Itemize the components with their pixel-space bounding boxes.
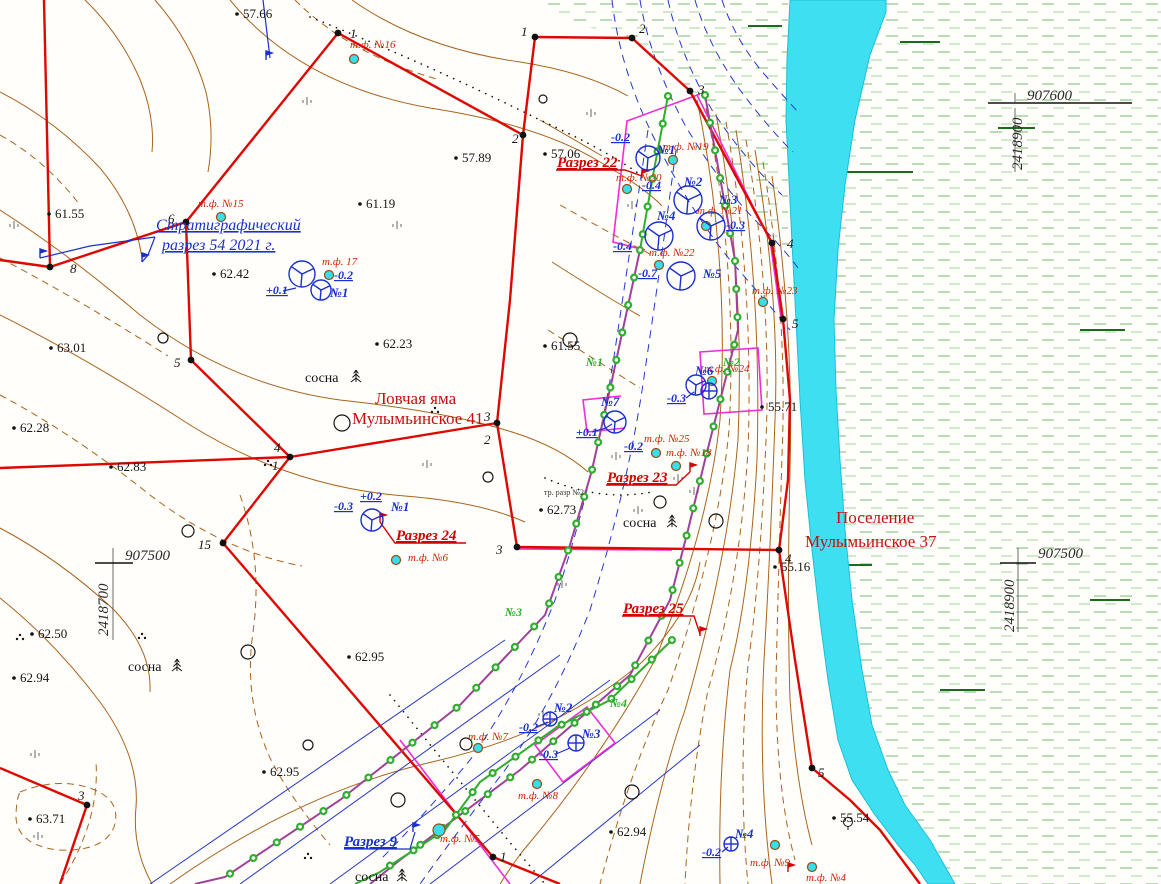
depth-offset-label: -0.2: [611, 130, 630, 144]
boundary-vertex-label: 1: [350, 26, 357, 41]
pit-number-label: №2: [683, 174, 703, 189]
survey-photo-point-dot: [652, 449, 661, 458]
photo-point-label: т.ф. 17: [322, 256, 358, 268]
pine-tree-icon: [172, 659, 182, 671]
site-name-label: Мулымьинское 41: [352, 409, 484, 428]
boundary-vertex-dot: [687, 88, 694, 95]
elevation-label: 55.54: [840, 810, 870, 825]
survey-photo-point-dot: [325, 271, 334, 280]
elevation-point-dot: [262, 770, 266, 774]
flag-icon: [266, 51, 272, 60]
elevation-point-dot: [454, 156, 458, 160]
depth-offset-label: +0.1: [576, 425, 598, 439]
pine-tree-icon: [397, 869, 407, 881]
grid-coordinate-label: 2418900: [1002, 579, 1018, 632]
pine-tree-icon: [667, 515, 677, 527]
boundary-vertex-label: 3: [77, 788, 85, 803]
depth-offset-label: -0.3: [334, 499, 353, 513]
trench-number-label: №1: [585, 355, 603, 369]
photo-point-label: т.ф. №18: [666, 447, 712, 459]
excavation-pit-icon: [701, 383, 717, 399]
elevation-point-dot: [12, 426, 16, 430]
boundary-vertex-dot: [809, 765, 816, 772]
survey-photo-point-dot: [672, 462, 681, 471]
pit-number-label: №1: [656, 142, 675, 157]
boundary-vertex-dot: [220, 540, 227, 547]
elevation-label: 57.66: [243, 6, 273, 21]
boundary-vertex-label: 1: [272, 458, 279, 473]
excavation-pit-icon: [645, 222, 673, 250]
boundary-vertex-dot: [629, 35, 636, 42]
boundary-vertex-dot: [514, 544, 521, 551]
boundary-vertex-label: 2: [484, 432, 491, 447]
pine-tree-icon: [351, 370, 361, 382]
elevation-label: 63.71: [36, 811, 65, 826]
elevation-label: 62.94: [617, 824, 647, 839]
photo-point-label: т.ф. №23: [752, 285, 798, 297]
elevation-label: 62.95: [270, 764, 299, 779]
elevation-point-dot: [543, 344, 547, 348]
trench-number-label: №2: [722, 355, 740, 369]
boundary-vertex-label: 2: [512, 131, 519, 146]
elevation-point-dot: [543, 152, 547, 156]
boundary-vertex-label: 5: [792, 316, 799, 331]
boundary-vertex-dot: [780, 316, 787, 323]
flag-icon: [413, 823, 419, 832]
elevation-label: 62.83: [117, 459, 146, 474]
elevation-point-dot: [30, 632, 34, 636]
boundary-vertex-dot: [494, 420, 501, 427]
elevation-point-dot: [12, 676, 16, 680]
vegetation-label: сосна: [355, 870, 389, 884]
grid-coordinate-label: 2418700: [96, 583, 112, 636]
point-symbol-circle: [303, 740, 313, 750]
elevation-point-dot: [760, 405, 764, 409]
boundary-vertex-dot: [769, 240, 776, 247]
depth-offset-label: -0.2: [702, 845, 721, 859]
photo-point-label: т.ф. №5: [440, 833, 481, 845]
depth-offset-label: -0.4: [642, 178, 661, 192]
elevation-label: 62.95: [355, 649, 384, 664]
trench-number-label: №3: [504, 605, 522, 619]
elevation-label: 57.89: [462, 150, 491, 165]
survey-photo-point-dot: [533, 780, 542, 789]
strat-section-label: Стратиграфический: [156, 217, 301, 234]
depth-offset-label: -0.7: [638, 266, 658, 280]
boundary-vertex-label: 2: [639, 21, 646, 36]
elevation-point-dot: [212, 272, 216, 276]
map-canvas[interactable]: 57.6657.8957.0661.5561.1962.4262.2361.55…: [0, 0, 1161, 884]
elevation-label: 62.42: [220, 266, 249, 281]
depth-offset-label: -0.4: [613, 239, 632, 253]
pit-number-label: №2: [553, 700, 573, 715]
excavation-section-label: Разрез 22: [557, 155, 618, 171]
pit-number-label: №7: [600, 394, 620, 409]
boundary-vertex-label: 3: [495, 542, 503, 557]
boundary-vertex-dot: [532, 34, 539, 41]
depth-offset-label: -0.2: [519, 720, 538, 734]
elevation-point-dot: [773, 565, 777, 569]
grid-coordinate-label: 907500: [125, 548, 171, 564]
elevation-point-dot: [347, 655, 351, 659]
excavation-section-label: Разрез 23: [607, 470, 668, 486]
swamp-symbols: [10, 97, 698, 859]
elevation-point-dot: [609, 830, 613, 834]
boundary-vertex-dot: [84, 802, 91, 809]
photo-point-label: т.ф. №9: [750, 857, 791, 869]
survey-photo-point-dot: [759, 298, 768, 307]
elevation-label: 62.28: [20, 420, 49, 435]
contour-lines: [0, 0, 812, 884]
flag-icon: [690, 463, 696, 472]
point-symbol-circle: [654, 496, 666, 508]
elevation-point-dot: [235, 12, 239, 16]
boundary-vertex-label: 8: [70, 261, 77, 276]
elevation-point-dot: [539, 508, 543, 512]
depth-offset-label: -0.2: [624, 439, 643, 453]
note-label: тр. разр №2: [544, 488, 584, 497]
excavation-pit-icon: [604, 411, 626, 433]
elevation-label: 62.50: [38, 626, 67, 641]
boundary-vertex-dot: [47, 264, 54, 271]
elevation-label: 62.23: [383, 336, 412, 351]
boundary-vertex-label: 1: [500, 849, 507, 864]
pit-number-label: №4: [734, 826, 754, 841]
boundary-vertex-dot: [335, 30, 342, 37]
depth-offset-label: -0.2: [334, 268, 353, 282]
elevation-point-dot: [375, 342, 379, 346]
depth-offset-label: -0.3: [726, 218, 745, 232]
point-symbol-circle: [334, 415, 350, 431]
elevation-point-dot: [28, 817, 32, 821]
photo-point-label: т.ф. №15: [198, 198, 244, 210]
survey-photo-point-dot: [392, 556, 401, 565]
grid-coordinate-label: 907600: [1027, 88, 1073, 104]
boundary-vertex-label: 15: [198, 537, 212, 552]
survey-photo-point-dot: [808, 863, 817, 872]
boundary-vertex-label: 3: [483, 409, 491, 424]
boundary-vertex-dot: [490, 854, 497, 861]
grid-coordinate-label: 907500: [1038, 546, 1084, 562]
survey-photo-point-dot: [771, 841, 780, 850]
pit-number-label: №1: [390, 499, 409, 514]
elevation-point-dot: [358, 202, 362, 206]
point-symbol-circle: [483, 472, 493, 482]
elevation-label: 62.73: [547, 502, 576, 517]
excavation-pit-icon: [289, 261, 315, 287]
topographic-map[interactable]: 57.6657.8957.0661.5561.1962.4262.2361.55…: [0, 0, 1161, 884]
point-symbol-circle: [539, 95, 547, 103]
elevation-label: 55.71: [768, 399, 797, 414]
excavation-section-label: Разрез 25: [623, 601, 684, 617]
site-name-label: Поселение: [836, 508, 914, 527]
photo-point-label: т.ф. №7: [468, 731, 509, 743]
elevation-label: 61.19: [366, 196, 395, 211]
elevation-point-dot: [49, 346, 53, 350]
photo-point-label: т.ф. №4: [806, 872, 847, 884]
depth-offset-label: +0.1: [266, 283, 288, 297]
pit-number-label: №1: [329, 285, 348, 300]
vegetation-label: сосна: [128, 660, 162, 675]
elevation-label: 61.55: [55, 206, 84, 221]
depth-offset-label: -0.3: [667, 391, 686, 405]
survey-photo-point-dot: [623, 185, 632, 194]
site-name-label: Ловчая яма: [375, 389, 457, 408]
elevation-point-dot: [47, 212, 51, 216]
grid-coordinate-label: 2418900: [1010, 117, 1026, 170]
vegetation-label: сосна: [305, 371, 339, 386]
boundary-vertex-label: 5: [818, 765, 825, 780]
point-symbol-circle: [241, 645, 255, 659]
elevation-label: 62.94: [20, 670, 50, 685]
elevation-label: 61.55: [551, 338, 580, 353]
survey-photo-point-dot: [474, 744, 483, 753]
photo-point-label: т.ф. №22: [649, 247, 695, 259]
trench-number-label: №4: [609, 696, 627, 710]
pit-number-label: №5: [702, 266, 722, 281]
vegetation-label: сосна: [623, 516, 657, 531]
boundary-vertex-dot: [188, 357, 195, 364]
boundary-vertex-label: 4: [274, 440, 281, 455]
boundary-vertex-label: 1: [521, 24, 528, 39]
boundary-vertex-label: 4: [787, 236, 794, 251]
boundary-vertex-label: 6: [168, 211, 175, 226]
site-name-label: Мулымьинское 37: [805, 532, 937, 551]
boundary-vertex-dot: [520, 132, 527, 139]
photo-point-label: т.ф. №8: [518, 790, 559, 802]
pit-number-label: №3: [718, 192, 738, 207]
excavation-section-label: Разрез 9: [344, 834, 398, 850]
water-level-lines: [150, 0, 798, 884]
depth-offset-label: +0.2: [360, 489, 382, 503]
pit-number-label: №3: [581, 726, 601, 741]
boundary-vertex-dot: [776, 547, 783, 554]
point-symbol-circle: [391, 793, 405, 807]
survey-photo-point-dot: [350, 55, 359, 64]
boundary-vertex-label: 5: [174, 355, 181, 370]
photo-point-label: т.ф. №16: [350, 39, 396, 51]
depth-offset-label: -0.3: [539, 747, 558, 761]
strat-section-label: разрез 54 2021 г.: [161, 237, 275, 254]
point-symbol-circle: [158, 333, 168, 343]
photo-point-label: т.ф. №6: [408, 552, 449, 564]
elevation-label: 63.01: [57, 340, 86, 355]
point-symbol-circle: [182, 525, 194, 537]
boundary-vertex-label: 3: [697, 82, 705, 97]
photo-point-label: т.ф. №25: [644, 433, 690, 445]
boundary-vertex-dot: [287, 454, 294, 461]
excavation-pit-icon: [311, 280, 331, 300]
pit-number-label: №4: [656, 208, 676, 223]
boundary-vertex-label: 4: [785, 551, 792, 566]
pit-number-label: №6: [694, 363, 714, 378]
excavation-pit-icon: [667, 262, 695, 290]
elevation-point-dot: [832, 816, 836, 820]
elevation-point-dot: [109, 465, 113, 469]
excavation-section-label: Разрез 24: [396, 528, 457, 544]
